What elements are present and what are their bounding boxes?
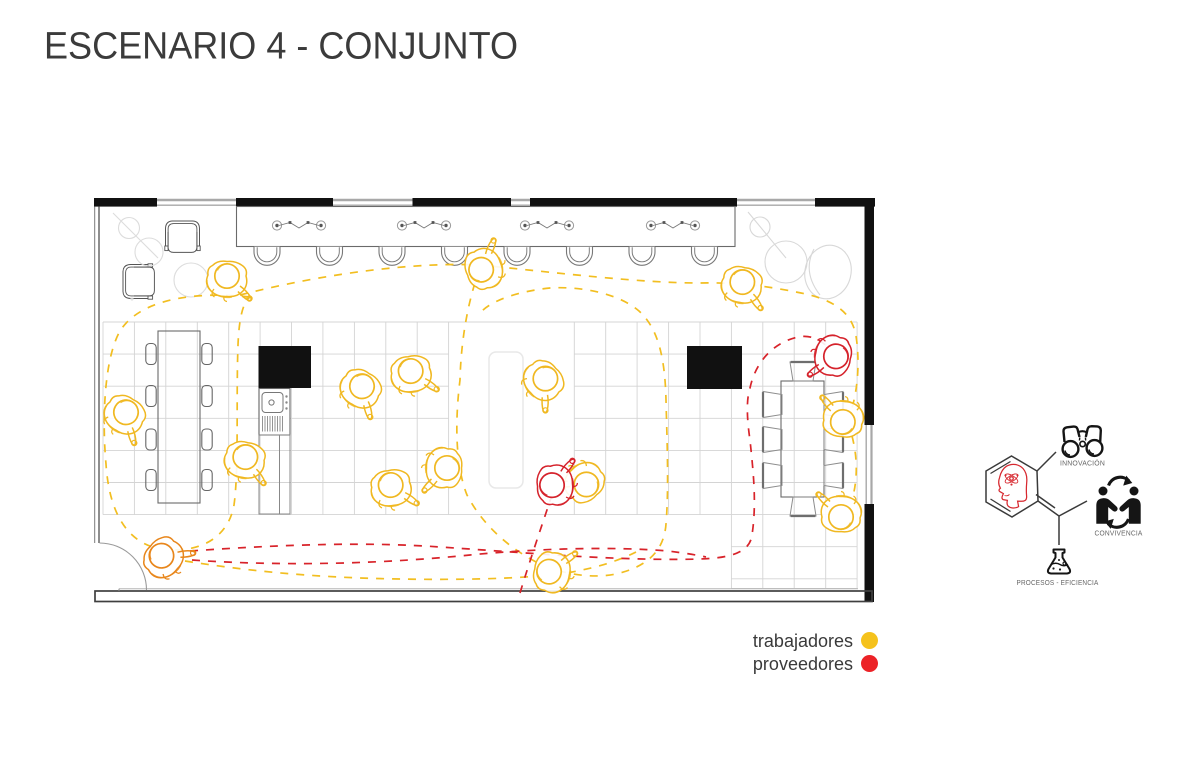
svg-text:trabajadores: trabajadores <box>753 631 853 651</box>
svg-text:ESCENARIO 4 - CONJUNTO: ESCENARIO 4 - CONJUNTO <box>44 26 518 68</box>
svg-text:CONVIVENCIA: CONVIVENCIA <box>1095 531 1143 538</box>
svg-text:proveedores: proveedores <box>753 654 853 674</box>
svg-text:INNOVACIÓN: INNOVACIÓN <box>1060 459 1105 468</box>
svg-text:PROCESOS - EFICIENCIA: PROCESOS - EFICIENCIA <box>1017 580 1099 587</box>
